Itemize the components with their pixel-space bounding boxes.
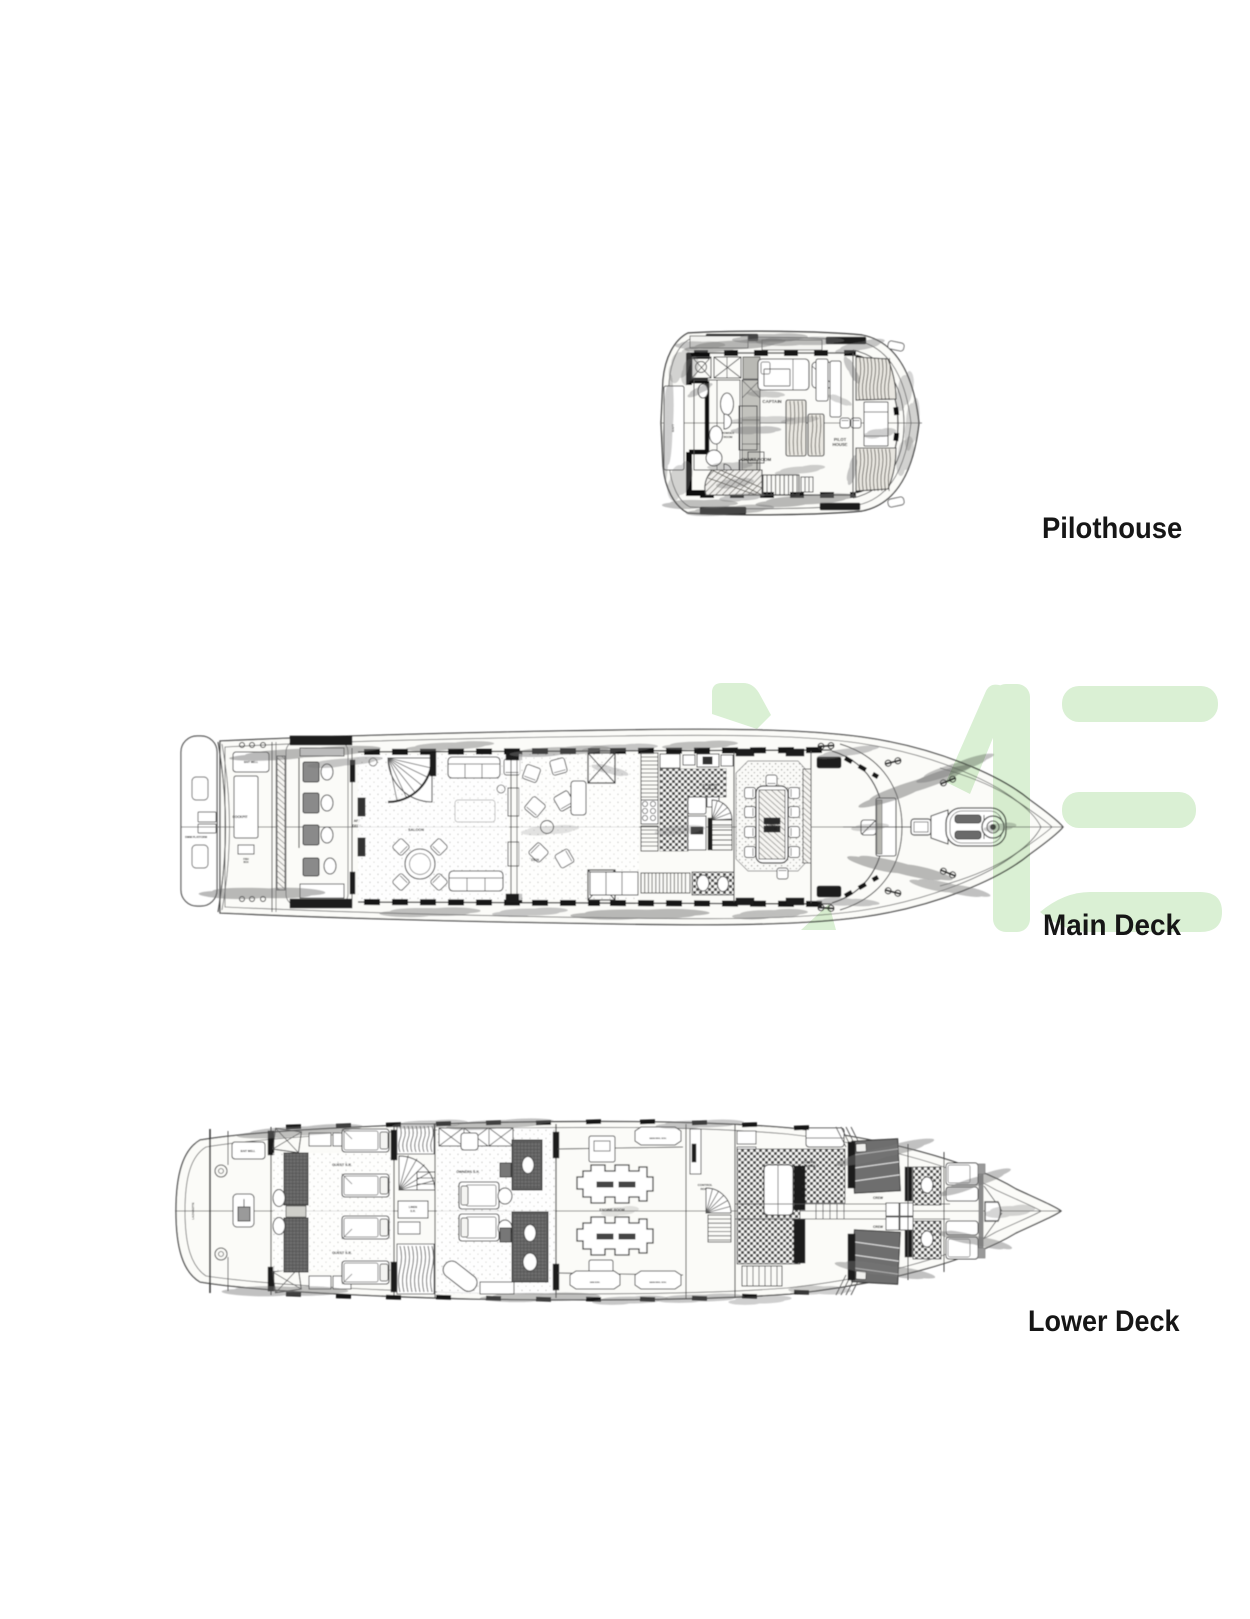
svg-text:COCKPIT: COCKPIT	[232, 815, 248, 819]
svg-text:CREW: CREW	[873, 1196, 884, 1200]
svg-text:SALOON: SALOON	[408, 828, 424, 832]
svg-text:BAIT WELL: BAIT WELL	[241, 1149, 256, 1153]
svg-text:MAIN ENG. EXH.: MAIN ENG. EXH.	[649, 1281, 667, 1284]
svg-text:S.R.: S.R.	[410, 1209, 416, 1213]
svg-text:CAPTAIN: CAPTAIN	[762, 399, 781, 404]
svg-text:ROOM: ROOM	[767, 827, 777, 831]
svg-text:MAIN ENG. EXH.: MAIN ENG. EXH.	[649, 1137, 667, 1140]
svg-text:ROOM: ROOM	[724, 435, 733, 439]
svg-text:GUEST S.R.: GUEST S.R.	[332, 1163, 352, 1167]
svg-text:BOX: BOX	[243, 861, 249, 864]
svg-text:KITCHEN: KITCHEN	[703, 787, 716, 791]
svg-text:GUEST S.R.: GUEST S.R.	[332, 1251, 352, 1255]
svg-text:CREW: CREW	[873, 1225, 884, 1229]
svg-text:LAZARETTE: LAZARETTE	[191, 1202, 195, 1219]
svg-text:DEN: DEN	[531, 858, 539, 862]
svg-text:CHART ROOM: CHART ROOM	[741, 457, 772, 462]
svg-text:GEN EXH.: GEN EXH.	[590, 1282, 601, 1284]
svg-text:OWNERS S.R.: OWNERS S.R.	[456, 1170, 480, 1174]
svg-text:HOUSE: HOUSE	[833, 442, 848, 447]
svg-text:SWIM PLATFORM: SWIM PLATFORM	[185, 835, 207, 839]
